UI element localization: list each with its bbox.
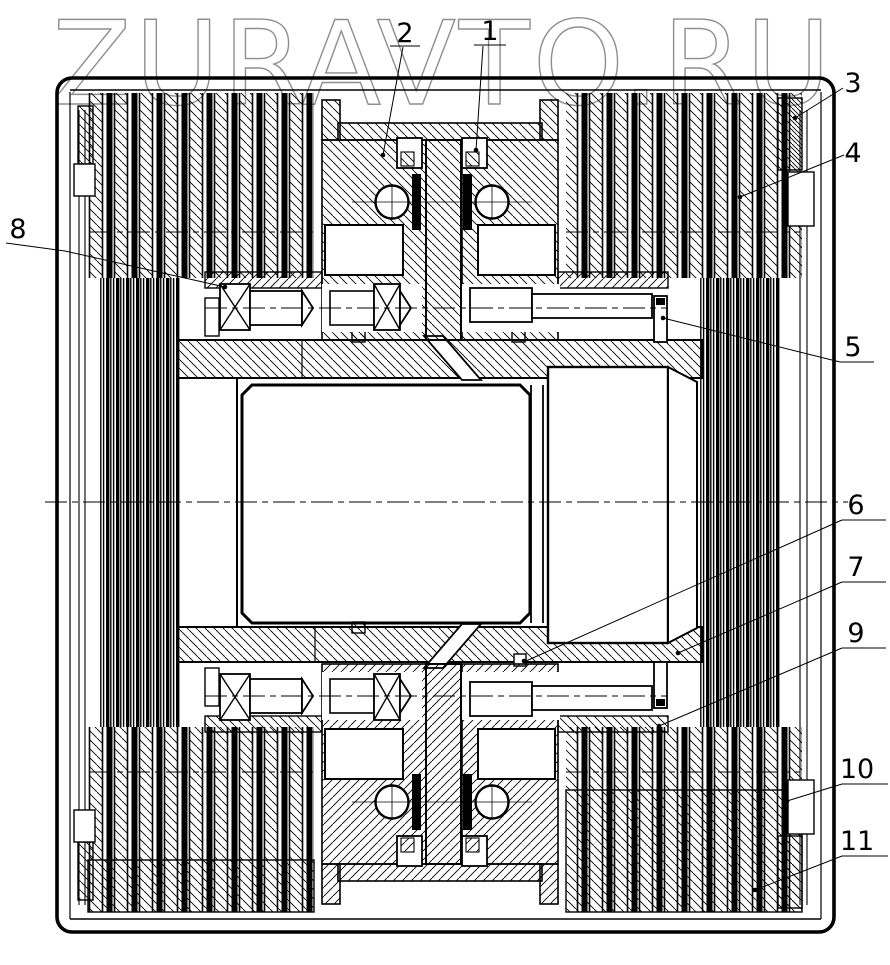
callout-label-9: 9 xyxy=(847,618,864,649)
spring-seat-right xyxy=(558,272,668,288)
callout-label-5: 5 xyxy=(844,332,861,363)
hub-pocket-left xyxy=(325,225,403,275)
callout-label-7: 7 xyxy=(847,552,864,583)
callout-label-4: 4 xyxy=(844,138,861,169)
center-web xyxy=(426,140,461,340)
hub-flange xyxy=(338,123,542,140)
hub-pocket-right xyxy=(478,225,555,275)
callout-label-2: 2 xyxy=(396,18,413,49)
callout-label-10: 10 xyxy=(840,754,874,785)
callout-label-3: 3 xyxy=(844,68,861,99)
callout-label-6: 6 xyxy=(847,490,864,521)
coil-spring-inner xyxy=(374,284,400,330)
right-long-plates xyxy=(700,278,780,727)
left-long-plates xyxy=(100,278,180,727)
drum-left-window xyxy=(242,385,530,623)
coil-spring-outer xyxy=(220,284,250,330)
drum-right-window xyxy=(548,367,668,643)
adjuster-bolt-shank xyxy=(532,294,652,318)
drum-right-chamfer xyxy=(668,367,697,643)
right-top-plates xyxy=(566,93,802,278)
left-top-plates xyxy=(88,93,314,278)
right-bottom-plates xyxy=(566,727,802,790)
technical-drawing-page: ZURAVTO.RU xyxy=(0,0,890,965)
callout-label-11: 11 xyxy=(840,826,874,857)
left-bottom-plates xyxy=(88,727,314,860)
callout-label-1: 1 xyxy=(481,16,498,47)
callout-label-8: 8 xyxy=(9,214,26,245)
adjuster-bolt-head xyxy=(470,288,532,322)
engineering-drawing: ZURAVTO.RU xyxy=(0,0,890,965)
